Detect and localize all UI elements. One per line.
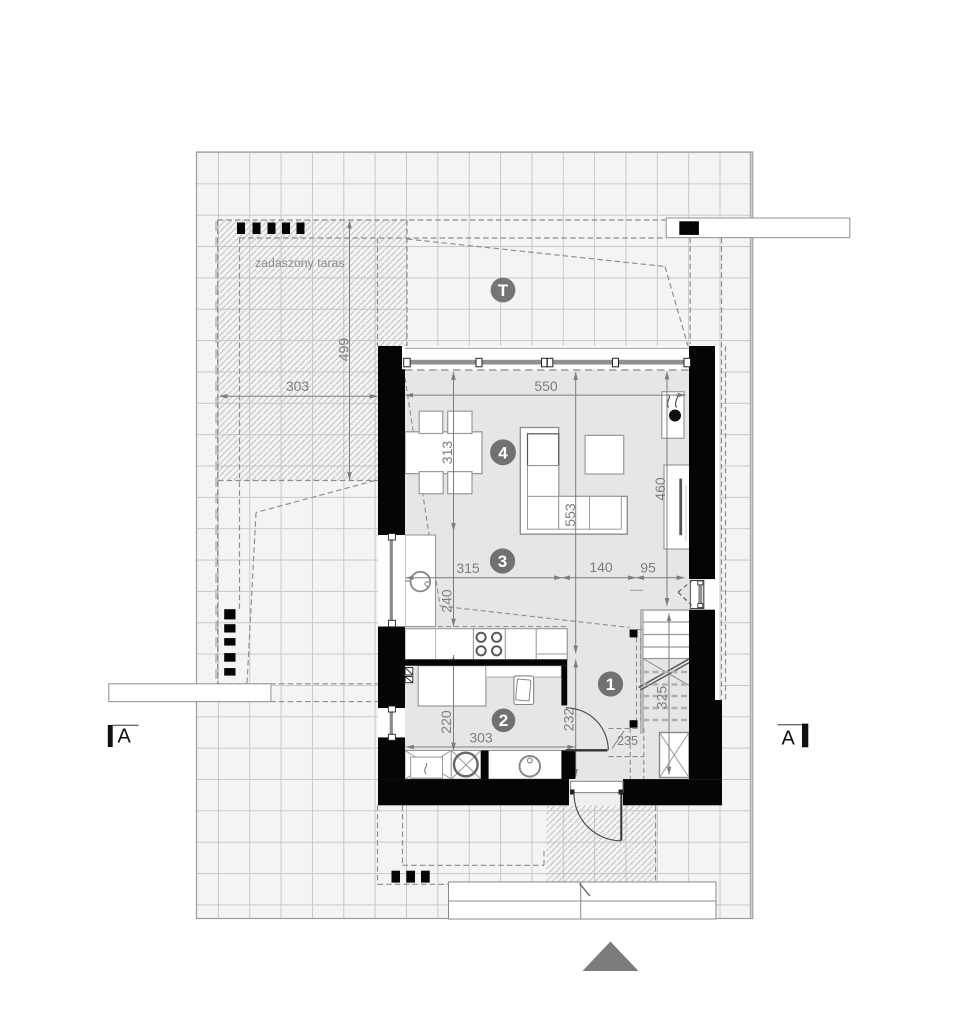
svg-text:A: A [118, 726, 132, 748]
svg-text:499: 499 [336, 338, 352, 362]
svg-text:315: 315 [456, 560, 480, 576]
svg-text:313: 313 [439, 441, 455, 465]
svg-text:303: 303 [286, 378, 310, 394]
svg-text:T: T [498, 281, 509, 300]
svg-text:zadaszony taras: zadaszony taras [255, 256, 345, 270]
svg-text:325: 325 [654, 686, 670, 710]
svg-text:4: 4 [498, 443, 508, 462]
svg-text:232: 232 [560, 708, 576, 732]
svg-text:303: 303 [469, 730, 493, 746]
svg-text:140: 140 [589, 559, 613, 575]
svg-text:1: 1 [606, 675, 615, 694]
svg-text:95: 95 [640, 560, 656, 576]
svg-text:553: 553 [562, 503, 578, 527]
svg-text:460: 460 [652, 477, 668, 501]
svg-text:3: 3 [498, 552, 507, 571]
svg-text:220: 220 [438, 710, 454, 734]
svg-text:A: A [782, 728, 796, 750]
svg-text:240: 240 [438, 589, 454, 613]
svg-text:2: 2 [499, 711, 508, 730]
svg-text:550: 550 [534, 378, 558, 394]
